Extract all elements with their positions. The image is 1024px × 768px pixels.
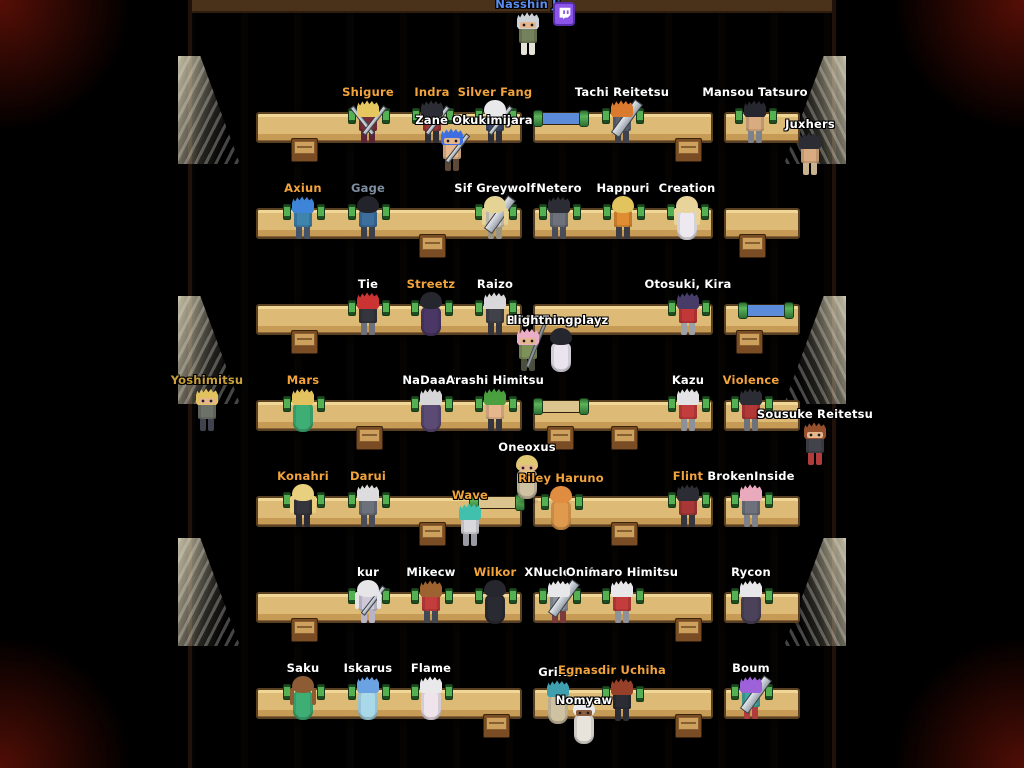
sprite-leg xyxy=(200,418,206,431)
stool[interactable] xyxy=(419,234,446,258)
scroll-roller xyxy=(348,204,356,220)
scroll-roller xyxy=(382,492,390,508)
scroll-roller xyxy=(382,204,390,220)
sprite-leg xyxy=(361,514,367,527)
sprite-head xyxy=(292,484,314,501)
sprite-shadow xyxy=(609,142,635,150)
stool[interactable] xyxy=(675,618,702,642)
player-sprite[interactable] xyxy=(511,455,543,505)
sprite-leg xyxy=(744,418,750,431)
player-sprite[interactable] xyxy=(512,12,544,62)
player-sprite[interactable] xyxy=(352,100,384,150)
sprite-head xyxy=(550,328,572,345)
sprite-body xyxy=(613,693,631,709)
sprite-head xyxy=(484,100,506,117)
sprite-shadow xyxy=(482,142,508,150)
scroll-roller xyxy=(348,300,356,316)
sprite-robe xyxy=(574,715,594,744)
sprite-leg xyxy=(361,322,367,335)
sprite-body xyxy=(198,403,216,419)
right-wall xyxy=(832,0,1024,768)
sprite-head xyxy=(611,100,633,117)
player-sprite[interactable] xyxy=(352,676,384,726)
sprite-body xyxy=(486,403,504,419)
scroll-paper xyxy=(540,400,582,413)
sprite-head xyxy=(611,580,633,597)
sprite-head xyxy=(677,388,699,405)
sprite-shadow xyxy=(355,142,381,150)
scroll-roller xyxy=(412,108,420,124)
scroll-roller xyxy=(411,396,419,412)
sprite-shadow xyxy=(675,334,701,342)
hair-lock xyxy=(696,208,700,225)
sprite-face xyxy=(520,338,536,344)
sprite-leg xyxy=(752,514,758,527)
sprite-head xyxy=(484,196,506,213)
stool[interactable] xyxy=(291,618,318,642)
stool[interactable] xyxy=(291,138,318,162)
sprite-leg xyxy=(624,226,630,239)
sprite-shadow xyxy=(675,430,701,438)
sprite-robe xyxy=(293,403,313,432)
hair-lock xyxy=(355,592,359,609)
player-sprite[interactable] xyxy=(352,484,384,534)
scroll-roller xyxy=(411,300,419,316)
sprite-shadow xyxy=(457,545,483,553)
player-sprite[interactable] xyxy=(735,676,767,726)
sprite-shadow xyxy=(738,526,764,534)
scroll-roller xyxy=(602,588,610,604)
sprite-face xyxy=(576,710,592,716)
sprite-head xyxy=(550,486,572,503)
player-sprite[interactable] xyxy=(606,678,638,728)
sprite-face xyxy=(444,138,460,144)
sprite-shadow xyxy=(290,526,316,534)
sprite-shadow xyxy=(355,334,381,342)
player-sprite[interactable] xyxy=(436,128,468,178)
sprite-shadow xyxy=(797,174,823,182)
sprite-body xyxy=(486,307,504,323)
sprite-head xyxy=(421,100,443,117)
sprite-shadow xyxy=(439,170,465,178)
sprite-body xyxy=(613,595,631,611)
scroll-roller xyxy=(382,300,390,316)
sprite-shadow xyxy=(515,370,541,378)
sprite-shadow xyxy=(738,718,764,726)
sprite-body xyxy=(614,211,632,227)
scroll-roller xyxy=(636,588,644,604)
player-sprite[interactable] xyxy=(479,292,511,342)
sprite-shadow xyxy=(482,430,508,438)
sprite-head xyxy=(484,292,506,309)
sprite-head xyxy=(292,196,314,213)
hair-lock xyxy=(674,208,678,225)
player-sprite[interactable] xyxy=(735,580,767,630)
sprite-leg xyxy=(756,130,762,143)
player-sprite[interactable] xyxy=(415,388,447,438)
sprite-body xyxy=(679,403,697,419)
sprite-head xyxy=(548,580,570,597)
sprite-robe xyxy=(421,307,441,336)
stool[interactable] xyxy=(356,426,383,450)
sprite-body xyxy=(422,595,440,611)
sprite-shadow xyxy=(609,622,635,630)
player-sprite[interactable] xyxy=(479,580,511,630)
scroll-roller xyxy=(731,492,739,508)
sprite-leg xyxy=(496,226,502,239)
sprite-leg xyxy=(803,162,809,175)
scroll-roller xyxy=(735,108,743,124)
sprite-leg xyxy=(816,452,822,465)
sprite-robe xyxy=(551,501,571,530)
scroll-roller xyxy=(317,204,325,220)
player-sprite[interactable] xyxy=(607,196,639,246)
sprite-shadow xyxy=(546,238,572,246)
scroll-roller xyxy=(382,684,390,700)
sprite-robe xyxy=(421,691,441,720)
sprite-leg xyxy=(488,322,494,335)
sprite-robe xyxy=(293,691,313,720)
scroll-roller xyxy=(445,396,453,412)
sprite-leg xyxy=(552,226,558,239)
sprite-head xyxy=(292,388,314,405)
stool[interactable] xyxy=(611,522,638,546)
scroll-roller xyxy=(509,300,517,316)
scroll-roller xyxy=(603,204,611,220)
player-sprite[interactable] xyxy=(606,580,638,630)
sprite-leg xyxy=(681,322,687,335)
sprite-leg xyxy=(689,514,695,527)
game-viewport: Nasshin JiShigureIndraSilver FangZane Ok… xyxy=(0,0,1024,768)
player-sprite[interactable] xyxy=(543,580,575,630)
sprite-head xyxy=(676,196,698,213)
scroll-roller xyxy=(475,300,483,316)
sprite-leg xyxy=(752,418,758,431)
sprite-face xyxy=(199,398,215,404)
sprite-leg xyxy=(811,162,817,175)
sprite-leg xyxy=(529,42,535,55)
scroll-roller xyxy=(475,108,483,124)
scroll-paper xyxy=(540,112,582,125)
sprite-body xyxy=(519,27,537,43)
sprite-leg xyxy=(623,708,629,721)
player-sprite[interactable] xyxy=(287,676,319,726)
sprite-shadow xyxy=(610,238,636,246)
sprite-head xyxy=(357,292,379,309)
scroll-roller xyxy=(317,396,325,412)
sprite-head xyxy=(420,580,442,597)
stool[interactable] xyxy=(611,426,638,450)
sprite-leg xyxy=(432,610,438,623)
scroll-roller xyxy=(702,396,710,412)
player-sprite[interactable] xyxy=(794,132,826,182)
sprite-leg xyxy=(304,226,310,239)
sprite-head xyxy=(740,388,762,405)
player-sprite[interactable] xyxy=(545,328,577,378)
scroll-roller xyxy=(348,492,356,508)
player-sprite[interactable] xyxy=(568,700,600,750)
sprite-leg xyxy=(361,226,367,239)
player-sprite[interactable] xyxy=(512,328,544,378)
sprite-leg xyxy=(463,533,469,546)
player-sprite[interactable] xyxy=(415,676,447,726)
player-sprite[interactable] xyxy=(545,486,577,536)
sprite-shadow xyxy=(609,720,635,728)
player-sprite[interactable] xyxy=(287,196,319,246)
sprite-shadow xyxy=(355,622,381,630)
sprite-leg xyxy=(623,610,629,623)
sprite-head xyxy=(420,292,442,309)
scroll-roller xyxy=(539,204,547,220)
sprite-leg xyxy=(496,130,502,143)
sprite-body xyxy=(294,499,312,515)
player-sprite[interactable] xyxy=(735,484,767,534)
sprite-body xyxy=(746,115,764,131)
scroll-roller xyxy=(509,396,517,412)
player-sprite[interactable] xyxy=(735,388,767,438)
scroll-roller xyxy=(475,396,483,412)
sprite-head xyxy=(740,484,762,501)
scroll-roller xyxy=(769,108,777,124)
sprite-robe xyxy=(485,595,505,624)
open-scroll[interactable] xyxy=(533,110,589,127)
sprite-head xyxy=(799,132,821,149)
stool[interactable] xyxy=(547,426,574,450)
sprite-leg xyxy=(689,418,695,431)
player-sprite[interactable] xyxy=(352,580,384,630)
sprite-head xyxy=(740,676,762,693)
scroll-roller xyxy=(702,300,710,316)
sprite-leg xyxy=(471,533,477,546)
sprite-body xyxy=(461,518,479,534)
stool[interactable] xyxy=(675,138,702,162)
sprite-shadow xyxy=(290,238,316,246)
sprite-head xyxy=(357,580,379,597)
sprite-robe xyxy=(358,691,378,720)
scroll-roller xyxy=(348,684,356,700)
hair-lock xyxy=(290,496,294,513)
sprite-leg xyxy=(689,322,695,335)
hair-lock xyxy=(482,208,486,225)
sprite-body xyxy=(742,499,760,515)
stool[interactable] xyxy=(675,714,702,738)
player-sprite[interactable] xyxy=(454,503,486,553)
sprite-leg xyxy=(453,158,459,171)
scroll-roller xyxy=(509,588,517,604)
sprite-shadow xyxy=(802,464,828,472)
sprite-head xyxy=(420,388,442,405)
scroll-roller xyxy=(411,684,419,700)
sprite-head xyxy=(547,680,569,697)
sprite-robe xyxy=(741,595,761,624)
stool[interactable] xyxy=(419,522,446,546)
sprite-leg xyxy=(369,514,375,527)
player-sprite[interactable] xyxy=(479,388,511,438)
scroll-roller xyxy=(668,300,676,316)
hair-lock xyxy=(312,688,316,705)
hair-lock xyxy=(504,208,508,225)
sprite-leg xyxy=(623,130,629,143)
sprite-shadow xyxy=(742,142,768,150)
sprite-robe xyxy=(551,343,571,372)
player-sprite[interactable] xyxy=(479,196,511,246)
sprite-head xyxy=(357,196,379,213)
sprite-leg xyxy=(560,226,566,239)
sprite-shadow xyxy=(738,430,764,438)
sprite-head xyxy=(459,503,481,520)
sprite-head xyxy=(420,676,442,693)
hair-lock xyxy=(312,496,316,513)
sprite-robe xyxy=(421,403,441,432)
sprite-body xyxy=(359,211,377,227)
sprite-head xyxy=(484,388,506,405)
sprite-leg xyxy=(752,706,758,719)
sprite-shadow xyxy=(675,526,701,534)
sprite-body xyxy=(359,499,377,515)
scroll-roller xyxy=(575,494,583,510)
sprite-head xyxy=(357,676,379,693)
sprite-leg xyxy=(744,514,750,527)
sprite-head xyxy=(677,292,699,309)
sprite-shadow xyxy=(482,238,508,246)
sprite-head xyxy=(611,678,633,695)
open-scroll[interactable] xyxy=(533,398,589,415)
player-sprite[interactable] xyxy=(415,580,447,630)
sprite-body xyxy=(550,211,568,227)
scroll-roller xyxy=(668,396,676,412)
scroll-roller xyxy=(731,684,739,700)
sprite-body xyxy=(679,499,697,515)
scroll-roller xyxy=(579,110,589,127)
sprite-shadow xyxy=(418,622,444,630)
sprite-face xyxy=(519,465,535,471)
scroll-roller xyxy=(602,686,610,702)
player-sprite[interactable] xyxy=(287,388,319,438)
player-sprite[interactable] xyxy=(606,100,638,150)
scroll-paper xyxy=(745,304,787,317)
left-wall xyxy=(0,0,192,768)
stool[interactable] xyxy=(483,714,510,738)
sprite-leg xyxy=(616,226,622,239)
sprite-leg xyxy=(296,226,302,239)
sprite-shadow xyxy=(355,238,381,246)
sprite-leg xyxy=(424,610,430,623)
sprite-leg xyxy=(369,226,375,239)
sprite-leg xyxy=(681,514,687,527)
sprite-leg xyxy=(615,610,621,623)
sprite-leg xyxy=(296,514,302,527)
scroll-roller xyxy=(579,398,589,415)
scroll-roller xyxy=(668,492,676,508)
sprite-head xyxy=(744,100,766,117)
sprite-head xyxy=(548,196,570,213)
sprite-head xyxy=(677,484,699,501)
player-sprite[interactable] xyxy=(479,100,511,150)
sprite-robe xyxy=(548,695,568,724)
sprite-head xyxy=(612,196,634,213)
scroll-roller xyxy=(317,684,325,700)
player-sprite[interactable] xyxy=(672,388,704,438)
sprite-leg xyxy=(681,418,687,431)
player-sprite[interactable] xyxy=(191,388,223,438)
sprite-shadow xyxy=(546,622,572,630)
scroll-roller xyxy=(445,588,453,604)
sprite-shadow xyxy=(194,430,220,438)
scroll-roller xyxy=(636,686,644,702)
sprite-body xyxy=(806,437,824,453)
scroll-roller xyxy=(317,492,325,508)
player-sprite[interactable] xyxy=(352,292,384,342)
hair-lock xyxy=(290,688,294,705)
scroll-roller xyxy=(765,396,773,412)
scroll-roller xyxy=(765,492,773,508)
scroll-roller xyxy=(539,588,547,604)
sprite-head xyxy=(292,676,314,693)
sprite-head xyxy=(357,484,379,501)
sprite-body xyxy=(294,211,312,227)
stool[interactable] xyxy=(736,330,763,354)
stool[interactable] xyxy=(739,234,766,258)
sprite-head xyxy=(357,100,379,117)
sprite-leg xyxy=(615,708,621,721)
stool[interactable] xyxy=(291,330,318,354)
sprite-leg xyxy=(560,610,566,623)
scroll-roller xyxy=(475,588,483,604)
scroll-roller xyxy=(283,204,291,220)
sprite-body xyxy=(679,307,697,323)
sprite-face xyxy=(520,22,536,28)
scroll-roller xyxy=(445,684,453,700)
scroll-roller xyxy=(445,300,453,316)
sprite-face xyxy=(807,432,823,438)
scroll-roller xyxy=(637,204,645,220)
sprite-robe xyxy=(517,470,537,499)
sprite-body xyxy=(742,403,760,419)
sprite-robe xyxy=(677,211,697,240)
sprite-leg xyxy=(808,452,814,465)
sprite-leg xyxy=(369,322,375,335)
player-sprite[interactable] xyxy=(739,100,771,150)
scroll-roller xyxy=(541,494,549,510)
sprite-leg xyxy=(748,130,754,143)
sprite-body xyxy=(359,307,377,323)
player-sprite[interactable] xyxy=(415,292,447,342)
twitch-icon[interactable] xyxy=(553,2,575,26)
scroll-roller xyxy=(784,302,794,319)
player-sprite[interactable] xyxy=(672,484,704,534)
open-scroll[interactable] xyxy=(738,302,794,319)
sprite-leg xyxy=(208,418,214,431)
player-sprite[interactable] xyxy=(671,196,703,246)
player-sprite[interactable] xyxy=(352,196,384,246)
sprite-leg xyxy=(521,42,527,55)
scroll-roller xyxy=(283,396,291,412)
player-sprite[interactable] xyxy=(543,196,575,246)
sprite-head xyxy=(484,580,506,597)
scroll-roller xyxy=(738,302,748,319)
player-sprite[interactable] xyxy=(287,484,319,534)
hair-lock xyxy=(377,592,381,609)
player-sprite[interactable] xyxy=(799,422,831,472)
sprite-leg xyxy=(488,418,494,431)
sprite-leg xyxy=(304,514,310,527)
scroll-roller xyxy=(765,588,773,604)
player-sprite[interactable] xyxy=(672,292,704,342)
sprite-shadow xyxy=(355,526,381,534)
scroll-roller xyxy=(701,204,709,220)
sprite-leg xyxy=(496,322,502,335)
scroll-roller xyxy=(573,204,581,220)
